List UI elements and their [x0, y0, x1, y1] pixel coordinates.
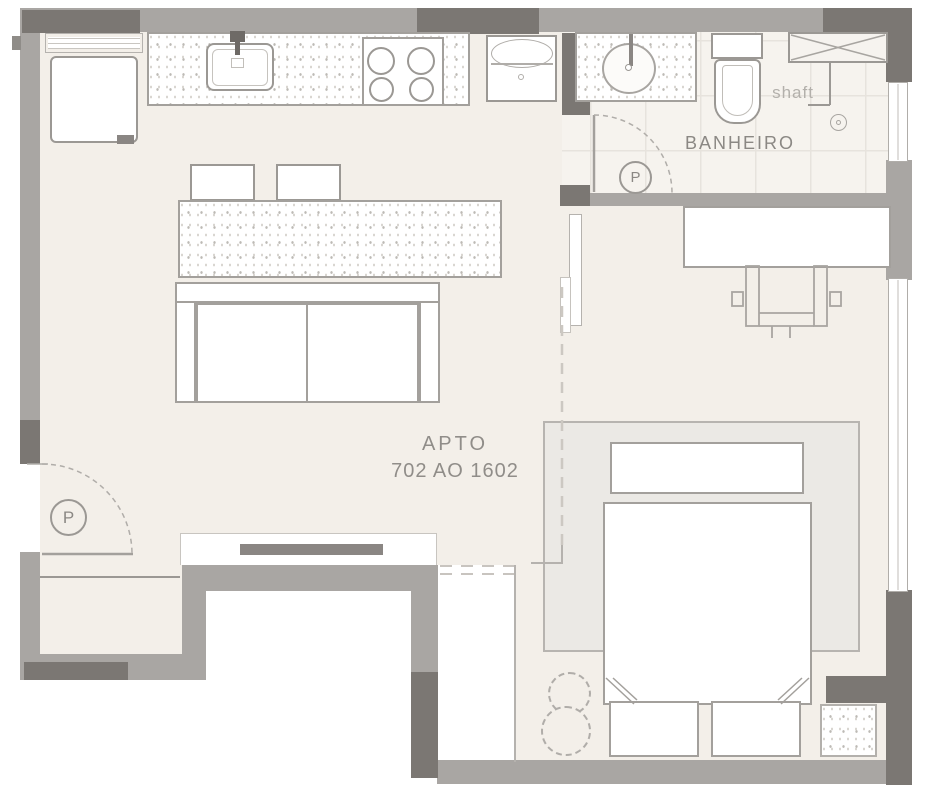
sideboard-handle: [240, 544, 383, 555]
laundry-drain: [518, 74, 524, 80]
wall-dark-notch-right: [411, 672, 438, 778]
bed-pillow: [609, 701, 699, 757]
shaft-label: shaft: [757, 82, 829, 104]
refrigerator: [50, 56, 138, 143]
burner-icon: [367, 47, 395, 75]
passage-edge-line: [514, 565, 516, 762]
kitchen-faucet: [230, 31, 245, 42]
wall-bathroom-bottom: [588, 193, 890, 206]
window-bathroom: [888, 82, 908, 162]
wall-dark-entry-jamb: [20, 420, 40, 464]
drain-icon-center: [836, 120, 841, 125]
wall-dark-top-mid: [417, 8, 539, 34]
toilet-tank: [711, 33, 763, 59]
wall-dark-top-left: [22, 10, 140, 33]
apartment-label-line2: 702 AO 1602: [365, 459, 545, 483]
wall-dark-bathroom-corner: [560, 185, 590, 206]
burner-icon: [369, 77, 394, 102]
bathroom-faucet: [629, 34, 633, 66]
bed-headboard: [610, 442, 804, 494]
entry-alcove-floor: [40, 565, 182, 654]
sofa-arm-right: [419, 301, 440, 403]
toilet-bowl-inner: [722, 65, 753, 116]
sofa-seat: [306, 303, 419, 403]
alcove-cabinet-line: [40, 576, 180, 578]
side-table: [820, 704, 877, 757]
refrigerator-hinge: [117, 135, 134, 144]
shaft-box: [788, 32, 888, 63]
wall-dark-bedroom-band: [826, 676, 912, 703]
wall-dark-bottom-left: [24, 662, 128, 680]
bathroom-sink-drain: [625, 64, 632, 71]
sliding-panel: [560, 277, 571, 333]
bar-stool: [276, 164, 341, 201]
wall-tab-left: [12, 36, 21, 50]
bar-stool: [190, 164, 255, 201]
sofa-back: [175, 282, 440, 303]
window-bedroom: [888, 278, 908, 592]
burner-icon: [409, 77, 434, 102]
island-counter: [178, 200, 502, 278]
wall-bottom: [437, 760, 888, 784]
bathroom-door-marker: P: [619, 161, 652, 194]
entry-door-marker: P: [50, 499, 87, 536]
wall-notch-right-upper: [411, 565, 438, 672]
wall-dark-right-top: [886, 30, 912, 82]
burner-icon: [407, 47, 435, 75]
pouf: [541, 706, 591, 756]
kitchen-faucet-spout: [235, 42, 240, 55]
wall-left-upper: [20, 8, 40, 464]
bathroom-label: BANHEIRO: [650, 131, 830, 155]
sofa-arm-left: [175, 301, 196, 403]
vent-grille: [45, 33, 143, 53]
bed-mattress: [603, 502, 812, 705]
apartment-label-line1: APTO: [395, 432, 515, 456]
kitchen-drain: [231, 58, 244, 68]
wall-notch-top: [182, 565, 438, 591]
desk: [683, 206, 891, 268]
sofa-seat: [196, 303, 308, 403]
floor-plan: BANHEIRO shaft APTO 702 AO 1602 P P: [0, 0, 949, 800]
bed-pillow: [711, 701, 801, 757]
laundry-sink-edge: [491, 63, 553, 65]
